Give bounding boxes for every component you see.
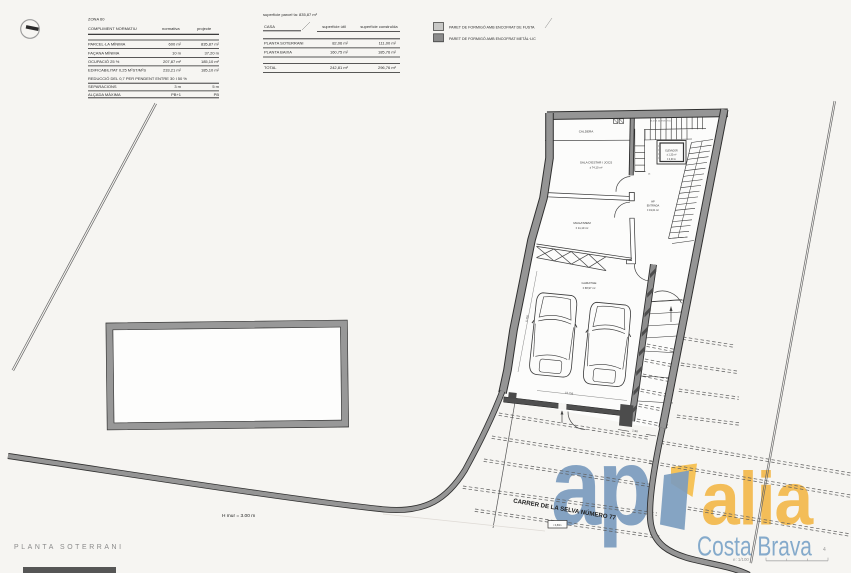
svg-text:ELEVADOR: ELEVADOR [665,150,678,153]
svg-text:± 68,97 m²: ± 68,97 m² [583,286,596,290]
svg-text:160,75 m²: 160,75 m² [330,50,349,55]
svg-text:± 19,01 m²: ± 19,01 m² [647,209,659,212]
svg-text:CASA: CASA [264,24,275,29]
svg-text:TOTAL: TOTAL [264,65,277,70]
svg-text:PLANTA BAIXA: PLANTA BAIXA [264,50,292,55]
svg-text:4: 4 [823,547,826,553]
svg-text:185,10 m²: 185,10 m² [201,59,220,64]
svg-text:REDUCCIÓ DEL 0,7 PER PENDENT: REDUCCIÓ DEL 0,7 PER PENDENT ENTRE 30 I … [88,76,187,81]
svg-text:3 m: 3 m [174,84,181,89]
svg-text:185,10 m²: 185,10 m² [201,68,220,73]
svg-text:CALDERA: CALDERA [579,130,595,134]
svg-text:± 4,00 m: ± 4,00 m [667,159,676,161]
svg-text:ENTRADA: ENTRADA [647,204,660,208]
svg-text:COMPLIMENT NORMATIU: COMPLIMENT NORMATIU [88,26,137,31]
svg-text:normativa: normativa [162,26,180,31]
svg-text:ap: ap [551,426,650,548]
svg-text:296,76 m²: 296,76 m² [378,65,397,70]
svg-text:37,20 m: 37,20 m [205,51,220,56]
svg-text:233,21 m²: 233,21 m² [163,68,182,73]
svg-text:e: 1/100: e: 1/100 [733,557,749,562]
svg-text:± 1,32 m²: ± 1,32 m² [667,154,677,157]
svg-text:EDIFICABILITAT 0,25 M²ST/M²S: EDIFICABILITAT 0,25 M²ST/M²S [88,68,146,73]
svg-text:PB+1: PB+1 [171,92,182,97]
svg-text:PB: PB [214,92,220,97]
svg-text:ALÇADA MÀXIMA: ALÇADA MÀXIMA [88,92,121,97]
svg-text:ZONA 60: ZONA 60 [88,17,105,22]
svg-text:207,87 m²: 207,87 m² [163,59,182,64]
svg-text:H mur = 3.00 m: H mur = 3.00 m [222,513,255,519]
svg-text:GARATGE: GARATGE [582,281,597,285]
svg-text:185,76 m²: 185,76 m² [378,50,397,55]
svg-text:MAGATZEM: MAGATZEM [573,221,591,225]
svg-text:alia: alia [701,457,814,541]
svg-text:projecte: projecte [197,26,212,31]
svg-text:PLANTA SOTERRANI: PLANTA SOTERRANI [14,544,124,551]
svg-text:± 11,10 m²: ± 11,10 m² [576,226,589,230]
svg-text:82,06 m²: 82,06 m² [332,41,348,46]
svg-text:i 0,80m: i 0,80m [554,524,562,527]
svg-text:SEPARACIONS: SEPARACIONS [88,84,117,89]
svg-text:111,00 m²: 111,00 m² [379,41,397,46]
svg-text:± 74,10 m²: ± 74,10 m² [590,166,603,170]
svg-text:PARET DE FORMIGÓ AMB ENCOFRAT: PARET DE FORMIGÓ AMB ENCOFRAT DE FUSTA [449,25,535,30]
svg-text:PLANTA SOTERRANI: PLANTA SOTERRANI [264,41,304,46]
svg-text:HP: HP [651,200,655,204]
svg-text:23 22 21 20 19 18 17 16: 23 22 21 20 19 18 17 16 [650,120,671,122]
svg-text:FAÇANA MÍNIMA: FAÇANA MÍNIMA [88,51,120,56]
svg-text:5 m: 5 m [212,84,219,89]
svg-text:242,81 m²: 242,81 m² [330,65,349,70]
svg-text:PARCEL·LA MÍNIMA: PARCEL·LA MÍNIMA [88,41,126,46]
svg-text:835,87 m²: 835,87 m² [201,41,220,46]
svg-text:superfície parcel·la: 835,87 m: superfície parcel·la: 835,87 m² [263,12,318,17]
svg-text:10 m: 10 m [172,51,182,56]
svg-text:OCUPACIÓ 25 %: OCUPACIÓ 25 % [88,59,120,64]
svg-text:600 m²: 600 m² [169,41,182,46]
svg-text:superfície útil: superfície útil [322,24,346,29]
svg-text:PARET DE FORMIGÓ AMB ENCOFRAT: PARET DE FORMIGÓ AMB ENCOFRAT METÀL·LIC [449,36,536,41]
svg-text:superfície construïda: superfície construïda [360,24,398,29]
svg-text:SALA D'ESTAR I JOCS: SALA D'ESTAR I JOCS [580,161,612,165]
